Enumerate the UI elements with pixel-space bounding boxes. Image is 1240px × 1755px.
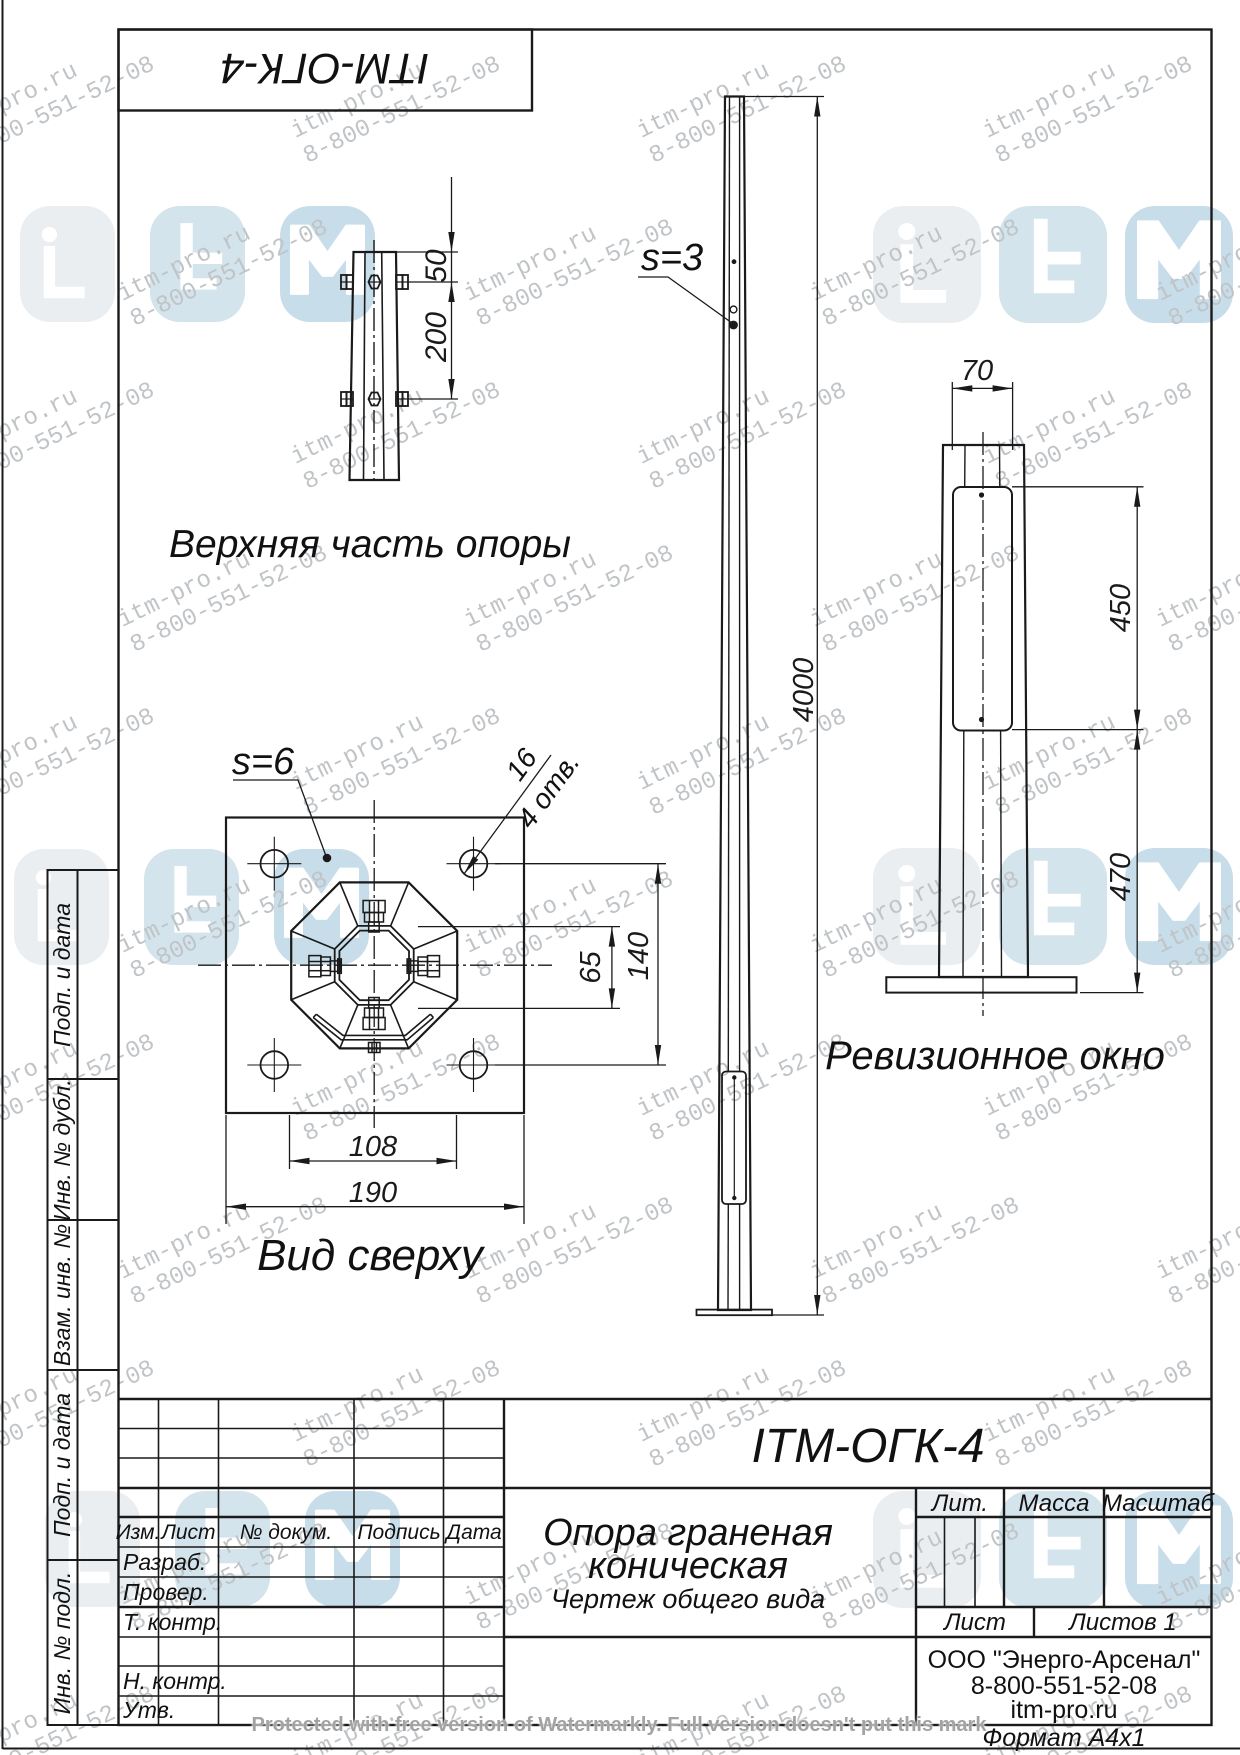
svg-text:70: 70 xyxy=(961,355,993,387)
svg-text:4000: 4000 xyxy=(788,658,820,723)
svg-text:Дата: Дата xyxy=(444,1521,501,1544)
svg-text:Инв. № подл.: Инв. № подл. xyxy=(49,1572,75,1715)
svg-text:470: 470 xyxy=(1105,853,1137,901)
svg-text:Изм.: Изм. xyxy=(116,1521,161,1544)
svg-text:Верхняя часть опоры: Верхняя часть опоры xyxy=(169,523,571,566)
svg-text:Листов 1: Листов 1 xyxy=(1067,1609,1176,1636)
svg-text:Т. контр.: Т. контр. xyxy=(123,1609,222,1635)
svg-text:Подп. и дата: Подп. и дата xyxy=(49,1393,75,1537)
svg-text:190: 190 xyxy=(349,1177,397,1209)
svg-text:140: 140 xyxy=(623,932,655,980)
svg-text:Масштаб: Масштаб xyxy=(1102,1490,1216,1517)
svg-text:200: 200 xyxy=(420,312,453,363)
svg-text:Лит.: Лит. xyxy=(930,1490,988,1517)
svg-text:s=3: s=3 xyxy=(641,237,703,279)
svg-text:450: 450 xyxy=(1105,584,1137,632)
svg-text:ITM-ОГК-4: ITM-ОГК-4 xyxy=(221,44,430,92)
svg-text:№ докум.: № докум. xyxy=(240,1521,333,1544)
svg-text:Чертеж общего вида: Чертеж общего вида xyxy=(551,1584,825,1614)
svg-text:Подп. и дата: Подп. и дата xyxy=(49,903,75,1047)
svg-text:50: 50 xyxy=(420,249,453,283)
svg-text:ООО "Энерго-Арсенал": ООО "Энерго-Арсенал" xyxy=(928,1646,1201,1674)
svg-text:коническая: коническая xyxy=(588,1545,788,1587)
svg-text:Подпись: Подпись xyxy=(357,1521,440,1544)
svg-text:Ревизионное окно: Ревизионное окно xyxy=(825,1034,1165,1078)
svg-text:Вид сверху: Вид сверху xyxy=(257,1231,486,1280)
svg-text:Разраб.: Разраб. xyxy=(123,1549,206,1575)
svg-text:ITM-ОГК-4: ITM-ОГК-4 xyxy=(751,1420,984,1473)
svg-text:Инв. № дубл.: Инв. № дубл. xyxy=(49,1079,75,1220)
svg-text:Взам. инв. №: Взам. инв. № xyxy=(49,1224,75,1366)
svg-text:Масса: Масса xyxy=(1019,1490,1090,1517)
svg-text:Лист: Лист xyxy=(159,1521,215,1544)
svg-text:s=6: s=6 xyxy=(232,741,295,783)
svg-text:65: 65 xyxy=(575,951,607,984)
svg-text:Лист: Лист xyxy=(942,1609,1006,1636)
svg-text:Н. контр.: Н. контр. xyxy=(123,1668,227,1694)
svg-text:108: 108 xyxy=(349,1131,397,1163)
svg-text:Провер.: Провер. xyxy=(123,1579,209,1605)
